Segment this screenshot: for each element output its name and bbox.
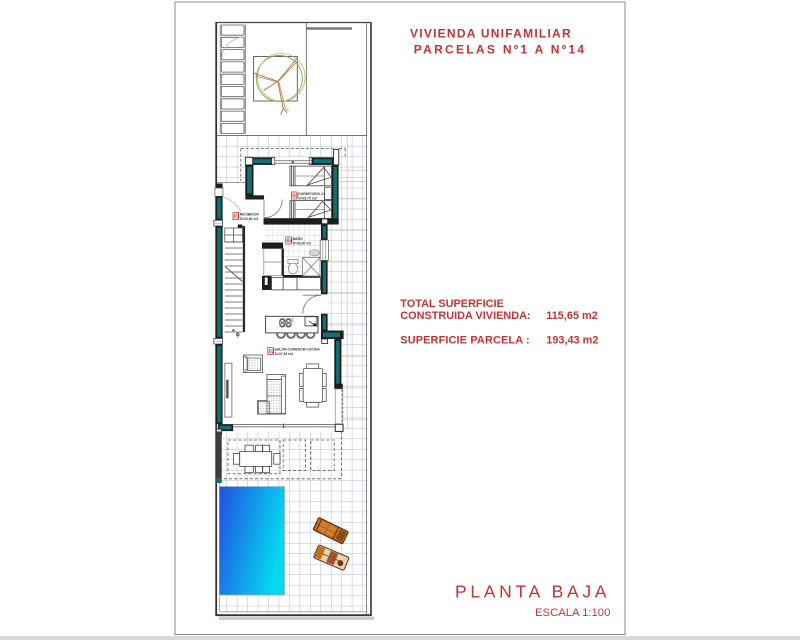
svg-text:115,65 m2: 115,65 m2	[546, 310, 597, 322]
svg-text:S=03,30 m2: S=03,30 m2	[293, 241, 312, 245]
svg-text:S=03,80 m2: S=03,80 m2	[240, 217, 259, 221]
svg-text:PARCELAS Nº1 A Nº14: PARCELAS Nº1 A Nº14	[414, 43, 587, 57]
svg-text:DORMITORIO C1: DORMITORIO C1	[298, 192, 325, 196]
svg-text:SALÓN-COMEDOR-COCINA: SALÓN-COMEDOR-COCINA	[275, 347, 321, 352]
svg-text:TOTAL SUPERFICIE: TOTAL SUPERFICIE	[400, 298, 503, 310]
svg-text:VIVIENDA UNIFAMILIAR: VIVIENDA UNIFAMILIAR	[410, 26, 572, 40]
svg-text:193,43 m2: 193,43 m2	[546, 335, 598, 347]
svg-text:PLANTA BAJA: PLANTA BAJA	[455, 581, 610, 601]
svg-text:S=37,35 m2: S=37,35 m2	[275, 352, 294, 356]
svg-text:RECIBIDOR: RECIBIDOR	[240, 213, 260, 217]
svg-text:SUPERFICIE PARCELA :: SUPERFICIE PARCELA :	[400, 335, 529, 347]
svg-text:S=08,75 m2: S=08,75 m2	[298, 196, 317, 200]
svg-text:ESCALA 1:100: ESCALA 1:100	[535, 607, 610, 619]
svg-text:CONSTRUIDA VIVIENDA:: CONSTRUIDA VIVIENDA:	[400, 310, 530, 322]
svg-text:BAÑO: BAÑO	[293, 236, 303, 241]
